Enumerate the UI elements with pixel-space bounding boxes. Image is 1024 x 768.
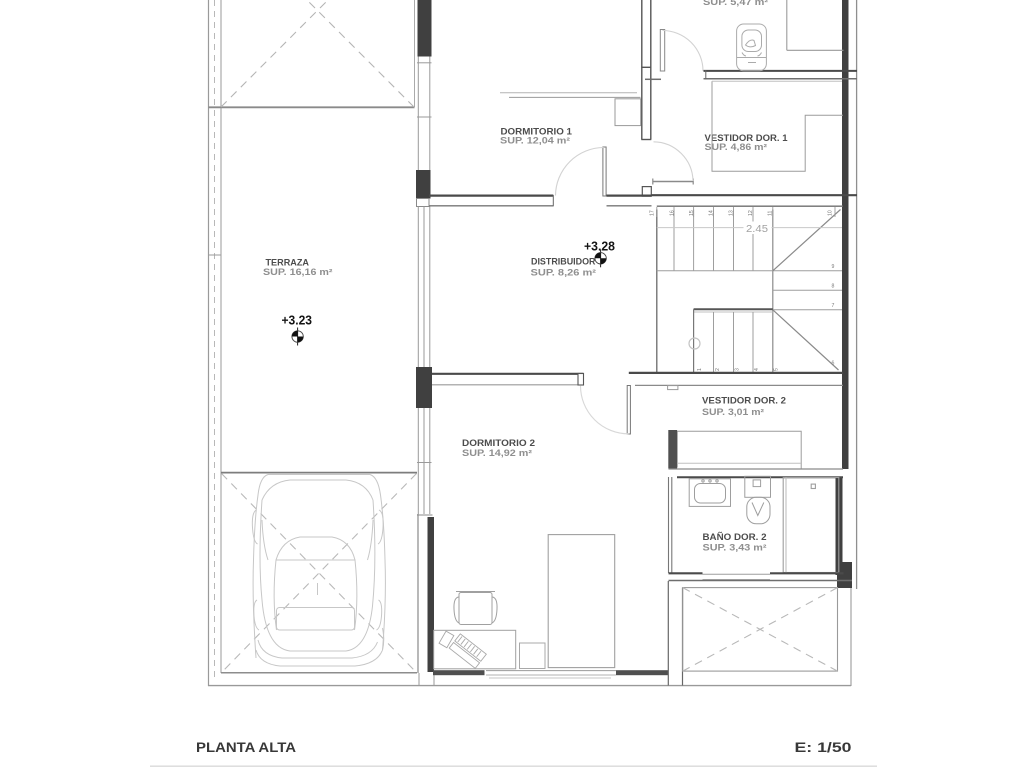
svg-text:TERRAZA: TERRAZA (266, 257, 310, 267)
svg-text:17: 17 (650, 210, 656, 216)
svg-text:16: 16 (670, 210, 676, 216)
svg-text:1: 1 (697, 368, 703, 371)
svg-text:BAÑO DOR. 2: BAÑO DOR. 2 (703, 532, 767, 542)
svg-text:5: 5 (774, 368, 780, 371)
svg-text:7: 7 (832, 303, 835, 309)
svg-text:14: 14 (709, 210, 715, 216)
svg-text:2.45: 2.45 (746, 224, 768, 235)
svg-text:+3.23: +3.23 (282, 314, 313, 328)
svg-text:SUP. 3,01 m²: SUP. 3,01 m² (702, 407, 764, 417)
svg-text:3: 3 (735, 368, 741, 371)
svg-text:SUP. 3,43 m²: SUP. 3,43 m² (703, 542, 767, 552)
svg-text:8: 8 (832, 284, 835, 290)
svg-text:SUP. 16,16 m²: SUP. 16,16 m² (263, 267, 333, 277)
svg-text:VESTIDOR DOR. 2: VESTIDOR DOR. 2 (702, 395, 786, 405)
svg-text:+3.28: +3.28 (584, 240, 615, 254)
svg-text:SUP. 4,86 m²: SUP. 4,86 m² (705, 142, 768, 152)
svg-text:9: 9 (832, 264, 835, 270)
svg-text:SUP. 5,47 m²: SUP. 5,47 m² (703, 0, 768, 7)
svg-text:11: 11 (768, 211, 774, 216)
svg-text:15: 15 (689, 210, 695, 216)
svg-text:10: 10 (828, 210, 834, 216)
svg-text:SUP. 12,04 m²: SUP. 12,04 m² (500, 135, 570, 145)
svg-text:2: 2 (715, 368, 721, 371)
svg-text:DORMITORIO 2: DORMITORIO 2 (462, 438, 535, 448)
svg-text:4: 4 (754, 368, 760, 371)
svg-text:E: 1/50: E: 1/50 (795, 740, 852, 755)
svg-text:12: 12 (748, 210, 754, 216)
svg-text:SUP. 8,26 m²: SUP. 8,26 m² (531, 267, 597, 277)
svg-text:PLANTA ALTA: PLANTA ALTA (196, 740, 296, 755)
svg-text:SUP. 14,92 m²: SUP. 14,92 m² (462, 448, 532, 458)
svg-text:6: 6 (832, 361, 835, 367)
svg-text:13: 13 (729, 210, 735, 216)
svg-text:DISTRIBUIDOR: DISTRIBUIDOR (531, 257, 596, 267)
